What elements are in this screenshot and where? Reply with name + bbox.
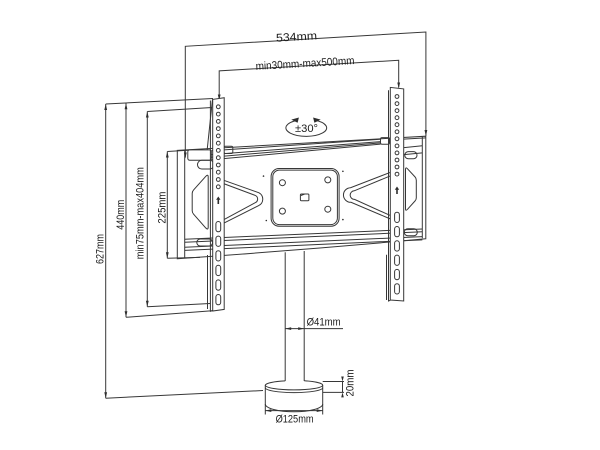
svg-text:20mm: 20mm (345, 370, 357, 397)
svg-text:534mm: 534mm (276, 30, 318, 44)
svg-text:min75mm-max404mm: min75mm-max404mm (135, 167, 147, 259)
svg-text:±30°: ±30° (295, 123, 318, 135)
svg-text:Ø125mm: Ø125mm (276, 413, 314, 425)
svg-text:min30mm-max500mm: min30mm-max500mm (255, 55, 355, 73)
svg-text:627mm: 627mm (94, 234, 106, 264)
svg-text:Ø41mm: Ø41mm (307, 317, 341, 329)
svg-text:225mm: 225mm (157, 192, 169, 224)
svg-text:440mm: 440mm (115, 200, 127, 230)
